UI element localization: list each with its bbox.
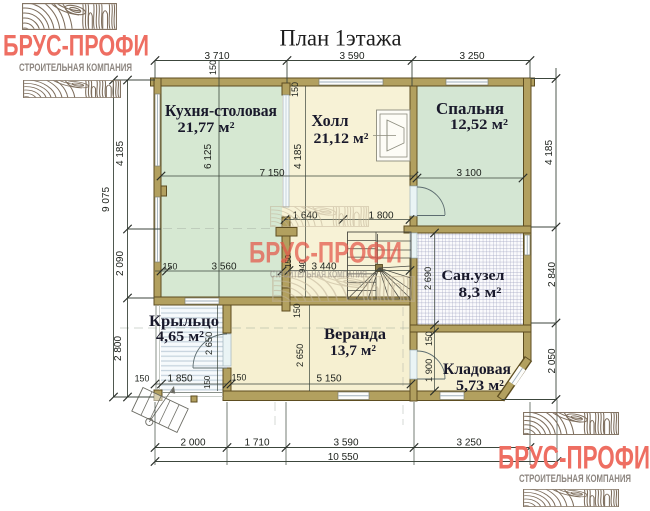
svg-text:СТРОИТЕЛЬНАЯ КОМПАНИЯ: СТРОИТЕЛЬНАЯ КОМПАНИЯ [519, 473, 631, 485]
svg-text:СТРОИТЕЛЬНАЯ КОМПАНИЯ: СТРОИТЕЛЬНАЯ КОМПАНИЯ [19, 62, 132, 74]
svg-text:21,77 м²: 21,77 м² [178, 120, 236, 136]
svg-text:150: 150 [163, 262, 178, 272]
svg-text:БРУС-ПРОФИ: БРУС-ПРОФИ [498, 440, 650, 476]
svg-text:10 550: 10 550 [328, 452, 359, 463]
svg-text:2 050: 2 050 [547, 348, 558, 373]
svg-text:Веранда: Веранда [324, 326, 386, 343]
svg-text:Кладовая: Кладовая [443, 361, 511, 378]
svg-text:1 710: 1 710 [244, 438, 269, 449]
svg-text:Крыльцо: Крыльцо [149, 313, 219, 330]
svg-text:8,3 м²: 8,3 м² [459, 285, 502, 301]
svg-text:12,52 м²: 12,52 м² [450, 117, 509, 133]
svg-text:21,12 м²: 21,12 м² [314, 131, 370, 147]
svg-text:5,73 м²: 5,73 м² [456, 378, 505, 394]
svg-text:3 590: 3 590 [339, 51, 364, 62]
svg-text:Сан.узел: Сан.узел [442, 268, 505, 284]
svg-text:БРУС-ПРОФИ: БРУС-ПРОФИ [3, 30, 149, 63]
svg-text:3 560: 3 560 [211, 262, 236, 273]
svg-text:150: 150 [290, 82, 300, 97]
svg-text:4,65 м²: 4,65 м² [156, 329, 205, 345]
svg-text:4 185: 4 185 [544, 140, 555, 165]
svg-text:7 150: 7 150 [259, 168, 284, 179]
svg-text:13,7 м²: 13,7 м² [330, 343, 377, 359]
svg-text:5 150: 5 150 [316, 374, 341, 385]
svg-text:3 250: 3 250 [459, 51, 484, 62]
svg-text:Спальня: Спальня [436, 99, 504, 118]
svg-text:2 800: 2 800 [113, 336, 124, 361]
svg-text:2 000: 2 000 [180, 438, 205, 449]
svg-text:Кухня-столовая: Кухня-столовая [165, 101, 277, 120]
svg-text:9 075: 9 075 [101, 187, 112, 212]
svg-text:1 850: 1 850 [167, 374, 192, 385]
svg-text:150: 150 [292, 303, 302, 318]
svg-text:3 250: 3 250 [456, 438, 481, 449]
svg-text:2 090: 2 090 [115, 251, 126, 276]
svg-text:2 840: 2 840 [547, 262, 558, 287]
svg-text:3 590: 3 590 [333, 438, 358, 449]
svg-text:2 650: 2 650 [204, 332, 214, 355]
svg-text:2 690: 2 690 [423, 267, 433, 290]
svg-text:БРУС-ПРОФИ: БРУС-ПРОФИ [249, 237, 402, 270]
svg-text:150: 150 [135, 374, 150, 384]
svg-text:1 900: 1 900 [424, 359, 434, 382]
svg-text:150: 150 [208, 60, 218, 75]
svg-text:3 100: 3 100 [456, 168, 481, 179]
svg-text:СТРОИТЕЛЬНАЯ КОМПАНИЯ: СТРОИТЕЛЬНАЯ КОМПАНИЯ [270, 269, 367, 281]
svg-text:4 185: 4 185 [115, 141, 126, 166]
svg-text:4 185: 4 185 [293, 144, 304, 169]
svg-text:150: 150 [203, 375, 212, 389]
svg-text:План 1этажа: План 1этажа [280, 26, 402, 51]
svg-text:150: 150 [232, 373, 247, 383]
svg-text:150: 150 [424, 331, 434, 346]
svg-text:1 800: 1 800 [368, 211, 393, 222]
svg-text:6 125: 6 125 [203, 144, 214, 169]
svg-text:2 650: 2 650 [295, 344, 305, 367]
svg-text:Холл: Холл [312, 111, 349, 130]
